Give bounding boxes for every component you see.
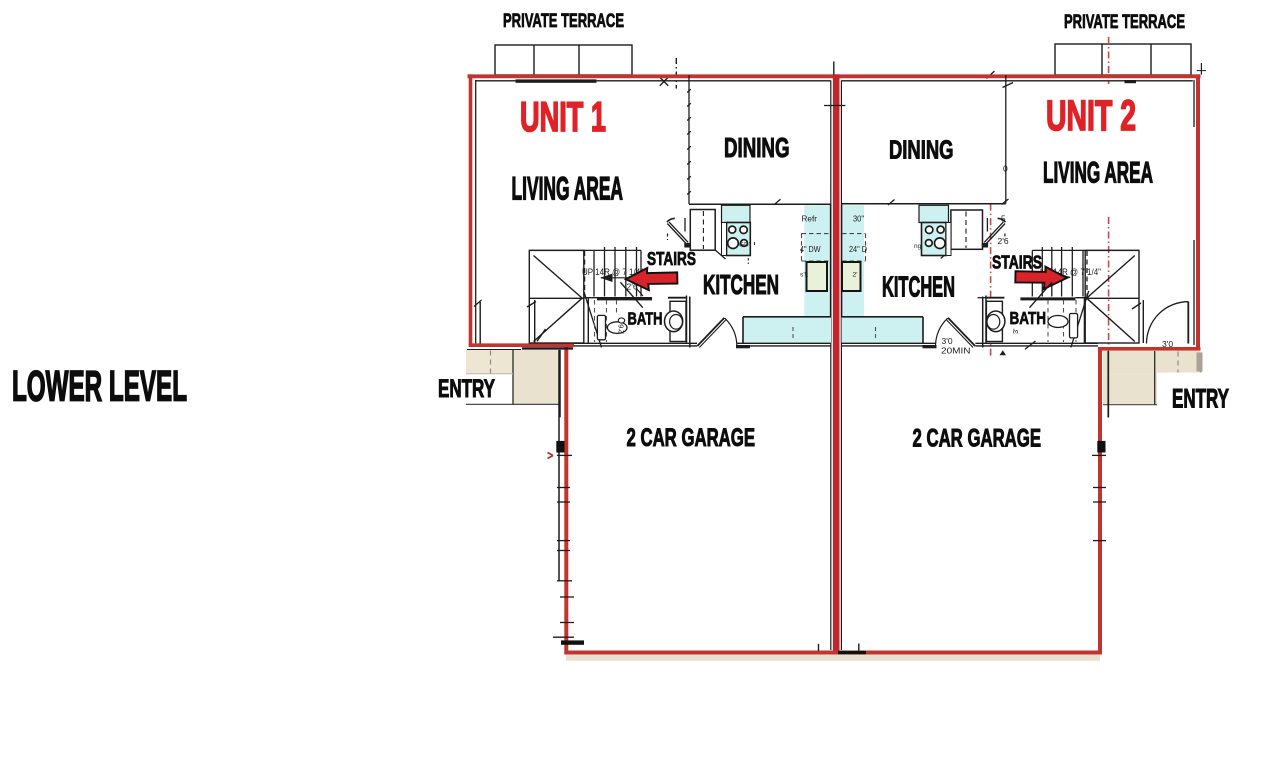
svg-text:PRIVATE TERRACE: PRIVATE TERRACE [1064, 11, 1185, 33]
svg-text:PRIVATE TERRACE: PRIVATE TERRACE [503, 10, 624, 32]
svg-text:UNIT 1: UNIT 1 [520, 93, 606, 140]
svg-text:ENTRY: ENTRY [438, 375, 495, 403]
svg-text:DINING: DINING [889, 135, 954, 165]
svg-text:30": 30" [853, 214, 864, 223]
svg-text:LIVING AREA: LIVING AREA [512, 171, 624, 207]
svg-text:2'6: 2'6 [998, 236, 1009, 246]
svg-text:2 CAR GARAGE: 2 CAR GARAGE [913, 425, 1042, 453]
svg-text:LOWER LEVEL: LOWER LEVEL [12, 364, 187, 411]
svg-text:5: 5 [1001, 215, 1006, 224]
svg-text:GD'l: GD'l [739, 242, 752, 249]
svg-text:ng: ng [914, 243, 922, 250]
svg-text:BATH: BATH [1010, 308, 1047, 328]
svg-text:s'k: s'k [800, 271, 809, 278]
svg-text:24" D: 24" D [849, 245, 867, 254]
svg-text:2'6: 2'6 [617, 324, 626, 334]
svg-text:KITCHEN: KITCHEN [882, 272, 955, 304]
svg-text:Refr: Refr [802, 214, 818, 223]
svg-text:0: 0 [1003, 164, 1008, 174]
svg-text:3': 3' [1011, 328, 1020, 334]
svg-text:2 CAR GARAGE: 2 CAR GARAGE [627, 424, 756, 452]
svg-text:4" DW: 4" DW [800, 245, 821, 254]
svg-text:KITCHEN: KITCHEN [703, 269, 779, 300]
svg-text:STAIRS: STAIRS [647, 248, 696, 269]
svg-text:3'0: 3'0 [1162, 339, 1173, 349]
svg-text:DINING: DINING [724, 132, 790, 163]
svg-text:2': 2' [853, 271, 858, 278]
svg-text:BATH: BATH [628, 309, 663, 329]
svg-text:LIVING AREA: LIVING AREA [1043, 157, 1153, 190]
svg-text:20MIN: 20MIN [941, 345, 971, 355]
svg-text:UNIT 2: UNIT 2 [1046, 92, 1136, 140]
svg-text:ENTRY: ENTRY [1172, 384, 1229, 414]
svg-text:STAIRS: STAIRS [992, 251, 1042, 272]
